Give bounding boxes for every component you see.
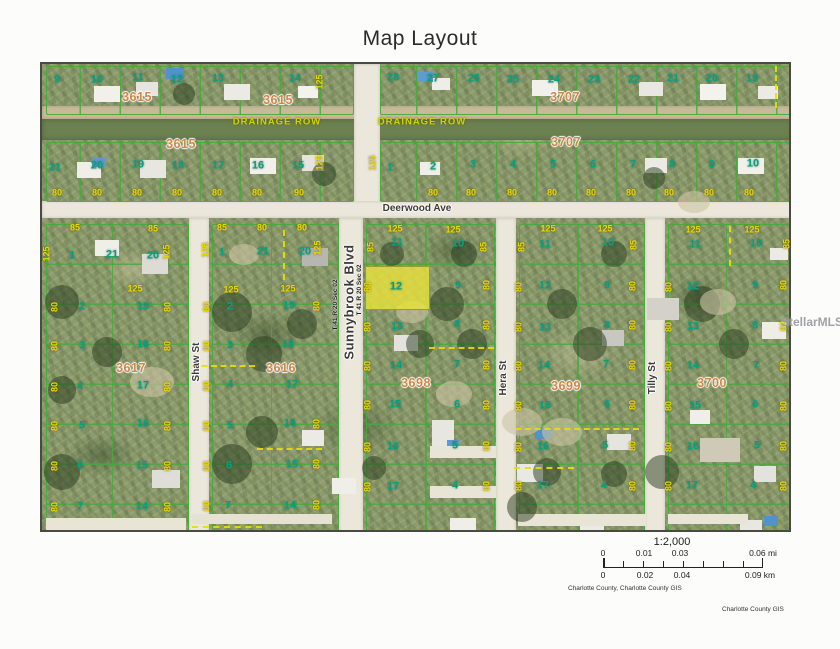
tree-canopy: [573, 327, 607, 361]
cleared-ground: [436, 381, 472, 406]
lot-dashed-line: [729, 226, 731, 266]
building: [607, 434, 631, 450]
scale-ratio: 1:2,000: [654, 536, 691, 548]
building: [639, 82, 663, 96]
building: [647, 298, 679, 320]
lot-dashed-line: [775, 66, 777, 108]
building: [302, 430, 324, 446]
building: [690, 410, 710, 424]
legend: November 30, 2025 Override 1 Road Center…: [0, 534, 560, 649]
tree-canopy: [287, 309, 317, 339]
tree-canopy: [44, 454, 80, 490]
building: [140, 160, 166, 178]
building: [430, 486, 496, 498]
lot-dashed-line: [192, 526, 262, 528]
road-hera-st: [496, 218, 516, 532]
building: [417, 72, 433, 82]
building: [532, 80, 558, 96]
cleared-ground: [229, 244, 259, 265]
cleared-ground: [678, 191, 710, 213]
drainage-row-ditch: [42, 119, 791, 140]
scale-km-tick-1: 0.02: [637, 570, 654, 580]
block-outline-3616: [212, 224, 339, 532]
building: [94, 86, 120, 102]
tree-canopy: [719, 329, 749, 359]
building: [770, 248, 788, 260]
building: [298, 86, 318, 98]
building: [700, 84, 726, 100]
building: [332, 478, 356, 494]
tree-canopy: [212, 292, 252, 332]
building: [46, 518, 186, 530]
lot-dashed-line: [429, 347, 494, 349]
lot-dashed-line: [192, 365, 255, 367]
tree-canopy: [48, 376, 76, 404]
tree-canopy: [645, 455, 679, 489]
scale-mi-tick-2: 0.03: [672, 548, 689, 558]
gis-credit: Charlotte County GIS: [722, 606, 784, 613]
building: [92, 158, 106, 167]
building: [450, 518, 476, 530]
lot-dashed-line: [515, 428, 639, 430]
tree-canopy: [212, 444, 252, 484]
lot-dashed-line: [514, 467, 574, 469]
map-layout-export: Map Layout: [0, 0, 840, 649]
block-outline-3707-north: [380, 66, 791, 115]
building: [762, 322, 786, 339]
building: [224, 84, 250, 100]
tree-canopy: [547, 289, 577, 319]
lot-dashed-line: [257, 448, 322, 450]
map-attribution: Charlotte County, Charlotte County GIS: [568, 585, 682, 592]
tree-canopy: [92, 337, 122, 367]
building: [700, 438, 740, 462]
building: [152, 470, 180, 488]
tree-canopy: [601, 461, 627, 487]
tree-canopy: [173, 83, 195, 105]
scale-mi-tick-1: 0.01: [636, 548, 653, 558]
building: [432, 78, 450, 90]
road-sunnybrook-blvd-north: [354, 64, 380, 206]
cleared-ground: [700, 289, 736, 314]
building: [420, 162, 440, 175]
scale-mi-tick-0: 0: [601, 548, 606, 558]
tree-canopy: [643, 167, 665, 189]
tree-canopy: [362, 456, 386, 480]
building: [430, 446, 496, 458]
tree-canopy: [312, 162, 336, 186]
page-title: Map Layout: [0, 27, 840, 51]
building: [95, 240, 119, 256]
block-outline-3707-south: [380, 142, 791, 202]
scale-km-tick-2: 0.04: [674, 570, 691, 580]
block-outline-3699: [519, 224, 645, 532]
scale-mi-tick-3: 0.06 mi: [749, 548, 777, 558]
scale-km-tick-0: 0: [601, 570, 606, 580]
scale-bar: 1:2,000 0 0.01 0.03 0.06 mi 0 0.02 0.04 …: [595, 536, 805, 588]
tree-canopy: [457, 329, 487, 359]
map-canvas[interactable]: [40, 62, 791, 532]
building: [668, 514, 748, 524]
cleared-ground: [502, 408, 542, 436]
road-shaw-st: [189, 218, 209, 532]
building: [142, 254, 168, 274]
tree-canopy: [45, 285, 79, 319]
building: [764, 516, 778, 526]
building: [136, 82, 158, 96]
tree-canopy: [246, 416, 278, 448]
building: [754, 466, 776, 482]
tree-canopy: [601, 241, 627, 267]
cleared-ground: [542, 418, 582, 446]
building: [166, 68, 184, 79]
tree-canopy: [430, 287, 464, 321]
tree-canopy: [533, 458, 561, 486]
scale-ruler: [603, 561, 763, 568]
scale-km-tick-3: 0.09 km: [745, 570, 775, 580]
highlighted-parcel[interactable]: [365, 266, 430, 310]
tree-canopy: [406, 330, 434, 358]
aerial-imagery: [40, 62, 791, 532]
tree-canopy: [451, 241, 477, 267]
lot-dashed-line: [283, 230, 285, 280]
tree-canopy: [380, 242, 404, 266]
cleared-ground: [130, 367, 174, 398]
building: [738, 158, 764, 174]
building: [192, 514, 332, 524]
tree-canopy: [507, 492, 537, 522]
block-outline-3700: [668, 224, 791, 532]
building: [302, 248, 328, 266]
building: [250, 158, 276, 174]
building: [518, 514, 646, 526]
